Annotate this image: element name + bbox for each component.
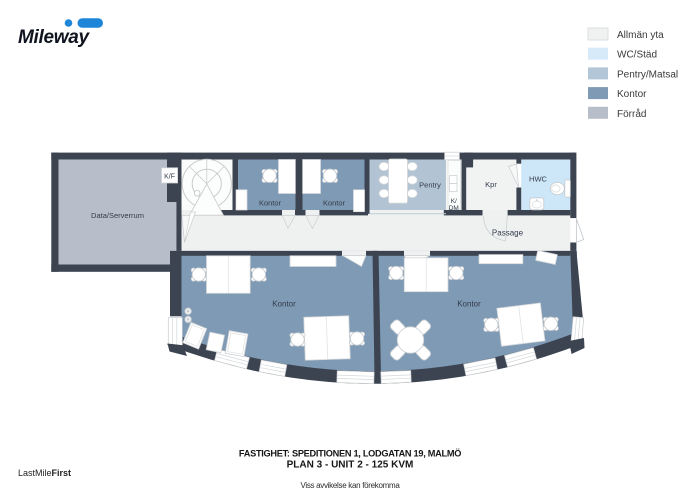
svg-text:Kontor: Kontor	[323, 199, 346, 208]
svg-text:K/: K/	[451, 198, 457, 205]
svg-text:Kontor: Kontor	[457, 300, 481, 309]
svg-text:DM: DM	[449, 205, 459, 212]
svg-text:LastMileFirst: LastMileFirst	[18, 468, 71, 478]
svg-text:Passage: Passage	[492, 229, 524, 238]
svg-text:Kontor: Kontor	[617, 89, 647, 100]
svg-text:K/F: K/F	[164, 173, 175, 180]
svg-text:Viss avvikelse kan förekomma: Viss avvikelse kan förekomma	[300, 481, 400, 490]
svg-text:Kontor: Kontor	[259, 199, 282, 208]
svg-text:PLAN 3 - UNIT 2 - 125 KVM: PLAN 3 - UNIT 2 - 125 KVM	[287, 460, 414, 471]
svg-text:Data/Serverrum: Data/Serverrum	[91, 211, 144, 220]
svg-text:Pentry/Matsal: Pentry/Matsal	[617, 69, 678, 80]
svg-text:WC/Städ: WC/Städ	[617, 50, 657, 61]
svg-text:Allmän yta: Allmän yta	[617, 30, 664, 41]
svg-text:Mileway: Mileway	[18, 27, 90, 48]
svg-text:Kontor: Kontor	[272, 300, 296, 309]
svg-text:Kpr: Kpr	[485, 180, 497, 189]
svg-text:Pentry: Pentry	[419, 181, 441, 190]
svg-text:HWC: HWC	[529, 175, 547, 184]
svg-text:FASTIGHET: SPEDITIONEN 1, LODG: FASTIGHET: SPEDITIONEN 1, LODGATAN 19, M…	[239, 449, 461, 459]
svg-text:Förråd: Förråd	[617, 108, 646, 120]
